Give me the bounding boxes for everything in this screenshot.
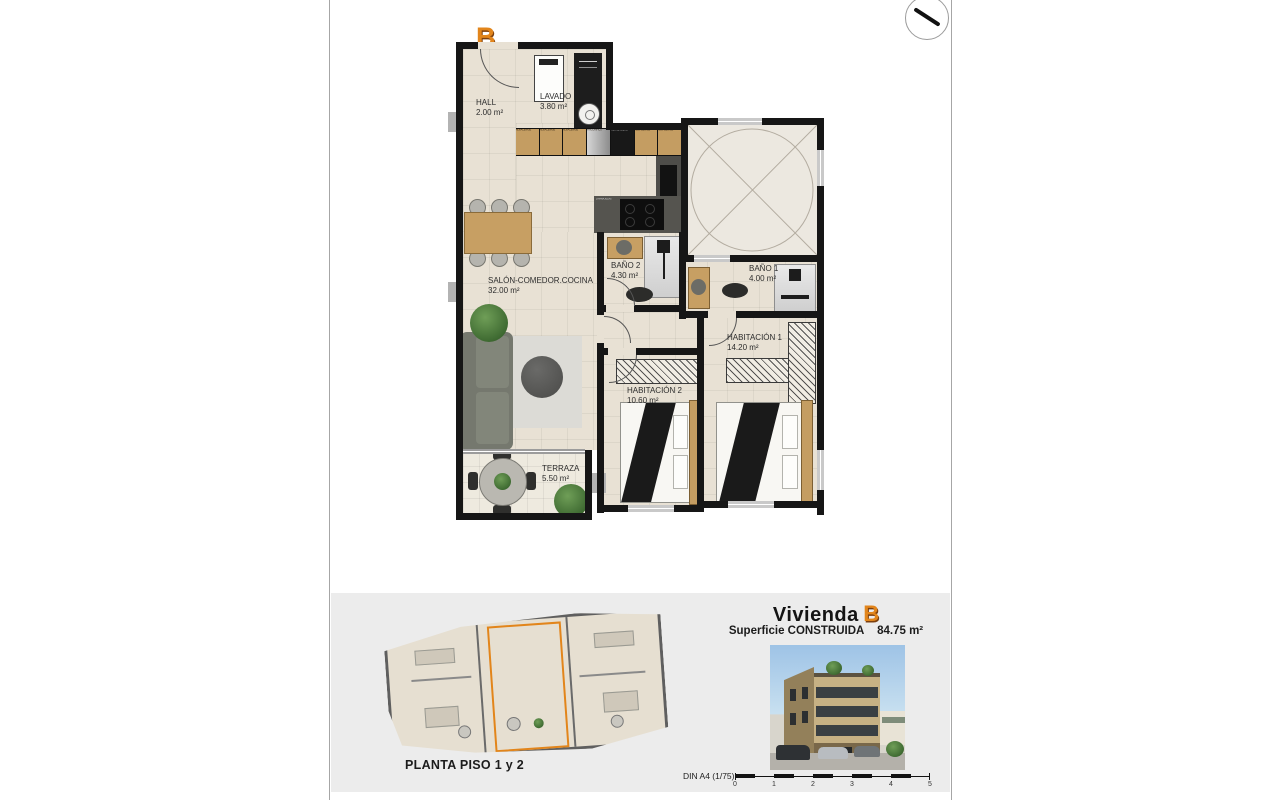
balcony-door-sill xyxy=(728,501,774,508)
scale-tick: 2 xyxy=(811,781,815,788)
scale-tick: 3 xyxy=(850,781,854,788)
sink-icon xyxy=(691,279,706,295)
kitchen-cabinets: ALMACENAJE ALMACENAJE ALMACENAJE FRIGORI… xyxy=(516,128,682,156)
overview-unit-b-outline xyxy=(486,621,569,752)
room-label-hall: HALL2.00 m² xyxy=(476,98,503,119)
wall-lavado-right xyxy=(606,42,613,130)
overview-plan-thumbnail xyxy=(383,607,670,762)
dining-table xyxy=(464,212,532,254)
sofa xyxy=(460,332,513,450)
room-label-bano1: BAÑO 14.00 m² xyxy=(749,264,778,285)
wall-terrace-right xyxy=(585,450,592,520)
dryer-drum-icon xyxy=(578,103,600,125)
toilet-bath1 xyxy=(722,283,748,298)
shower-bath1 xyxy=(774,264,816,312)
door-opening xyxy=(708,311,736,318)
balcony-door-sill xyxy=(628,505,674,512)
room-label-terraza: TERRAZA5.50 m² xyxy=(542,464,579,485)
room-label-bano2: BAÑO 24.30 m² xyxy=(611,261,640,282)
scale-bar: 0 1 2 3 4 5 xyxy=(735,776,930,777)
room-label-hab1: HABITACIÓN 114.20 m² xyxy=(727,333,782,354)
wardrobe-hab1-top xyxy=(726,358,790,383)
unit-title-letter: B xyxy=(863,601,879,626)
terrace-chair xyxy=(526,472,536,490)
unit-title-prefix: Vivienda xyxy=(773,604,859,626)
shower-bath2 xyxy=(644,236,684,298)
photo-car xyxy=(818,747,848,759)
cabinet-fridge: FRIGORIFICO xyxy=(587,129,610,155)
terrace-chair xyxy=(468,472,478,490)
door-opening xyxy=(606,305,634,312)
plan-sheet-page: { "sheet": { "unit_badge": "B", "north_a… xyxy=(0,0,1280,800)
shaft-cross-icon xyxy=(688,125,817,255)
north-arrow-icon xyxy=(905,0,949,40)
scale-tick: 0 xyxy=(733,781,737,788)
cabinet-label: ALMACENAJE xyxy=(563,129,572,131)
cabinet: ALMACENAJE xyxy=(540,129,563,155)
window-sill xyxy=(718,118,762,125)
photo-car xyxy=(854,746,880,757)
room-label-lavado: LAVADO3.80 m² xyxy=(540,92,571,113)
cooktop-icon xyxy=(620,199,664,230)
cabinet: ALMACENAJE xyxy=(658,129,681,155)
cabinet-label: ALMACENAJE xyxy=(516,129,525,131)
room-label-salon: SALÓN-COMEDOR.COCINA32.00 m² xyxy=(488,276,593,297)
cabinet-label: FRIGORIFICO xyxy=(587,129,596,131)
door-opening xyxy=(608,348,636,355)
floor-shaft xyxy=(688,125,817,255)
door-opening xyxy=(597,315,604,343)
wall-kitchen-top xyxy=(606,123,688,130)
photo-car xyxy=(776,745,810,760)
door-opening xyxy=(478,42,518,49)
window-sill xyxy=(817,150,824,186)
wall-salon-right xyxy=(597,232,604,513)
wall-left xyxy=(456,42,463,520)
wardrobe-hab1-right xyxy=(788,322,816,404)
surface-label: Superficie CONSTRUIDA xyxy=(729,625,864,637)
drawing-sheet: B xyxy=(329,0,952,800)
overview-caption: PLANTA PISO 1 y 2 xyxy=(405,758,524,772)
scale-tick: 4 xyxy=(889,781,893,788)
wall-terrace-bottom xyxy=(456,513,592,520)
kitchen-island: LAVAVAJILLAS xyxy=(594,196,686,233)
window-sill xyxy=(817,450,824,490)
scale-label: DIN A4 (1/75) xyxy=(683,771,735,781)
footer-panel: PLANTA PISO 1 y 2 Vivienda B Superficie … xyxy=(331,593,950,792)
bed-hab2 xyxy=(620,402,692,503)
bed-hab1 xyxy=(716,402,802,503)
cabinet: ALMACENAJE xyxy=(635,129,658,155)
appliance-column xyxy=(574,53,602,130)
wall-hab1-top xyxy=(681,311,824,318)
coffee-table xyxy=(521,356,563,398)
unit-title: Vivienda B xyxy=(711,601,941,627)
wall-hab-divider xyxy=(697,318,704,508)
cabinet-label: ALMACENAJE xyxy=(540,129,549,131)
cabinet: ALMACENAJE xyxy=(516,129,539,155)
surface-value: 84.75 m² xyxy=(877,625,923,637)
window-sill xyxy=(694,255,730,262)
terrace-table xyxy=(479,458,527,506)
scale-tick: 5 xyxy=(928,781,932,788)
vanity-bath1 xyxy=(688,267,710,309)
headboard-hab1 xyxy=(801,400,813,505)
vanity-bath2 xyxy=(607,237,643,259)
plant xyxy=(470,304,508,342)
cabinet: ALMACENAJE xyxy=(563,129,586,155)
sliding-door xyxy=(463,449,585,454)
scale-tick: 1 xyxy=(772,781,776,788)
surface-line: Superficie CONSTRUIDA 84.75 m² xyxy=(711,625,941,637)
building-photo xyxy=(770,645,905,770)
sink-icon xyxy=(616,240,632,255)
cabinet-oven: HORNO MICRO xyxy=(611,129,634,155)
room-label-hab2: HABITACIÓN 210.60 m² xyxy=(627,386,682,407)
